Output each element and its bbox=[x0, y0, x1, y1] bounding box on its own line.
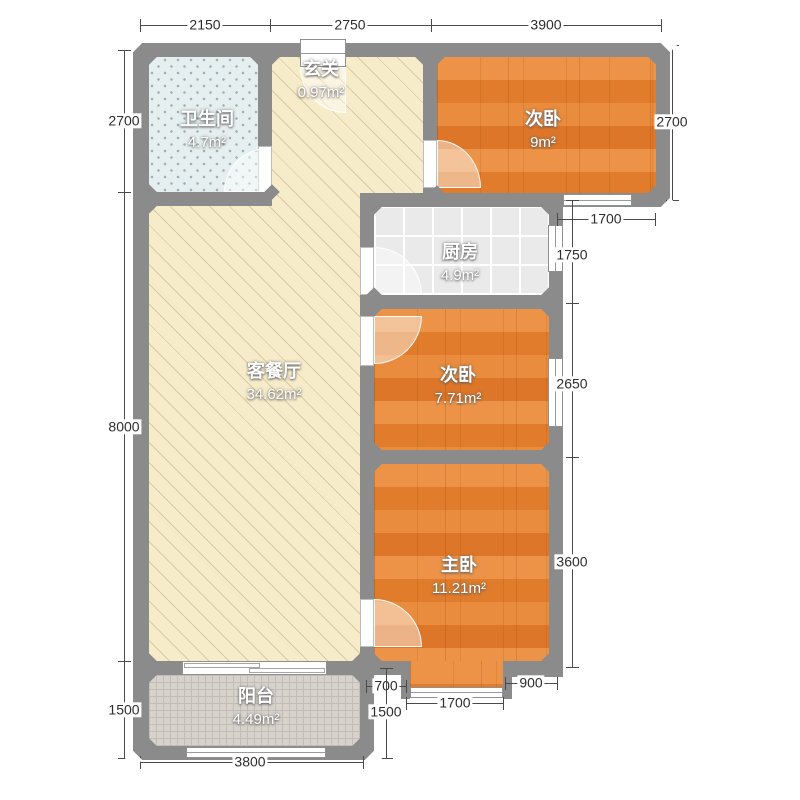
room-master-label: 主卧 11.21m² bbox=[432, 552, 486, 600]
room-balcony-label: 阳台 4.49m² bbox=[233, 683, 280, 731]
wall-left bbox=[133, 43, 149, 760]
dim-right-master-tick bbox=[566, 457, 579, 458]
dim-top-middle-label: 2750 bbox=[332, 17, 367, 32]
room-name: 玄关 bbox=[298, 56, 345, 82]
room-area: 34.62m² bbox=[246, 384, 301, 406]
room-name: 阳台 bbox=[233, 683, 280, 709]
dim-left-bathroom-label: 2700 bbox=[106, 113, 141, 128]
dim-left-balcony-label: 1500 bbox=[106, 702, 141, 717]
room-area: 9m² bbox=[525, 132, 561, 154]
dim-master-offset-left-tick bbox=[366, 680, 367, 693]
dim-right-kitchen-tick bbox=[566, 200, 579, 201]
dim-balcony-right-label: 1500 bbox=[368, 704, 403, 719]
dim-master-offset-left-tick bbox=[406, 680, 407, 693]
wall-top bbox=[133, 43, 670, 57]
bedroom2-door bbox=[360, 316, 374, 366]
dim-bottom-balcony-label: 3800 bbox=[232, 754, 267, 769]
dim-top-left-tick bbox=[140, 19, 141, 32]
room-name: 主卧 bbox=[432, 552, 486, 578]
wall-bed2-master-divider bbox=[374, 450, 549, 464]
wall-kitchen-bottom bbox=[374, 295, 549, 309]
bedroom2-window bbox=[548, 358, 563, 427]
dim-top-middle-tick bbox=[270, 19, 271, 32]
room-area: 4.7m² bbox=[180, 132, 234, 154]
dim-top-left-label: 2150 bbox=[187, 17, 222, 32]
dim-master-bay-window-tick bbox=[406, 697, 407, 710]
dim-right-kitchen-label: 1750 bbox=[554, 247, 589, 262]
room-bedroom1-label: 次卧 9m² bbox=[525, 106, 561, 154]
dim-master-bay-window-label: 1700 bbox=[437, 695, 472, 710]
dim-top-right-label: 3900 bbox=[528, 17, 563, 32]
dim-master-offset-right-tick bbox=[505, 677, 506, 690]
room-entry-label: 玄关 0.97m² bbox=[298, 56, 345, 104]
dim-master-offset-right-label: 900 bbox=[517, 675, 544, 690]
sliding-door-panel bbox=[249, 668, 325, 673]
balcony-sliding-door bbox=[182, 661, 327, 675]
dim-left-living-label: 8000 bbox=[106, 419, 141, 434]
dim-top-right-tick bbox=[661, 19, 662, 32]
dim-bottom-balcony-tick bbox=[363, 756, 364, 769]
dim-right-bedroom2-tick bbox=[566, 303, 579, 304]
dim-bedroom1-window-tick bbox=[557, 213, 558, 226]
room-area: 11.21m² bbox=[432, 578, 486, 600]
dim-balcony-right-tick bbox=[380, 668, 393, 669]
dim-bedroom1-window-label: 1700 bbox=[588, 211, 623, 226]
wall-outer-right-mid bbox=[549, 207, 563, 677]
room-area: 7.71m² bbox=[435, 388, 482, 410]
room-name: 客餐厅 bbox=[246, 358, 301, 384]
bedroom1-door bbox=[423, 140, 437, 188]
room-bathroom-label: 卫生间 4.7m² bbox=[180, 106, 234, 154]
room-area: 0.97m² bbox=[298, 82, 345, 104]
dim-right-master-tick bbox=[566, 667, 579, 668]
dim-bedroom1-window-tick bbox=[655, 213, 656, 226]
dim-top-right-tick bbox=[431, 19, 432, 32]
dim-master-bay-window-tick bbox=[503, 697, 504, 710]
room-area: 4.49m² bbox=[233, 709, 280, 731]
dim-left-bathroom-tick bbox=[118, 50, 131, 51]
master-door bbox=[360, 599, 374, 647]
dim-right-bedroom2-label: 2650 bbox=[554, 376, 589, 391]
room-kitchen-label: 厨房 4.9m² bbox=[441, 239, 479, 287]
dim-left-living-tick bbox=[118, 192, 131, 193]
dim-master-offset-right-tick bbox=[557, 677, 558, 690]
room-name: 卫生间 bbox=[180, 106, 234, 132]
floor-plan: 卫生间 4.7m² 玄关 0.97m² 次卧 9m² 厨房 4.9m² 次卧 7… bbox=[0, 0, 800, 800]
dim-left-balcony-tick bbox=[118, 661, 131, 662]
master-bay-floor bbox=[410, 661, 503, 687]
dim-right-master-label: 3600 bbox=[554, 554, 589, 569]
room-living-label: 客餐厅 34.62m² bbox=[246, 358, 301, 406]
room-name: 厨房 bbox=[441, 239, 479, 265]
room-name: 次卧 bbox=[435, 362, 482, 388]
room-area: 4.9m² bbox=[441, 265, 479, 287]
room-name: 次卧 bbox=[525, 106, 561, 132]
dim-right-bedroom1-label: 2700 bbox=[654, 114, 689, 129]
room-bedroom2-label: 次卧 7.71m² bbox=[435, 362, 482, 410]
